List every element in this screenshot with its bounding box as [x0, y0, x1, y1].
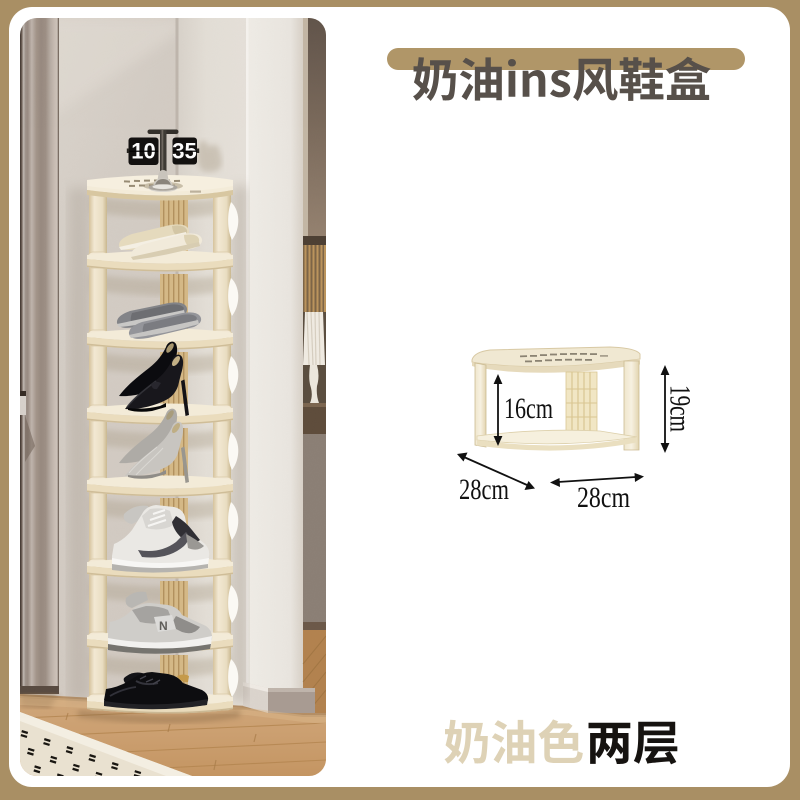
svg-text:28cm: 28cm	[577, 481, 630, 514]
svg-text:28cm: 28cm	[459, 473, 509, 506]
svg-text:19cm: 19cm	[664, 385, 697, 432]
svg-text:N: N	[159, 619, 168, 633]
svg-text:16cm: 16cm	[504, 392, 553, 425]
